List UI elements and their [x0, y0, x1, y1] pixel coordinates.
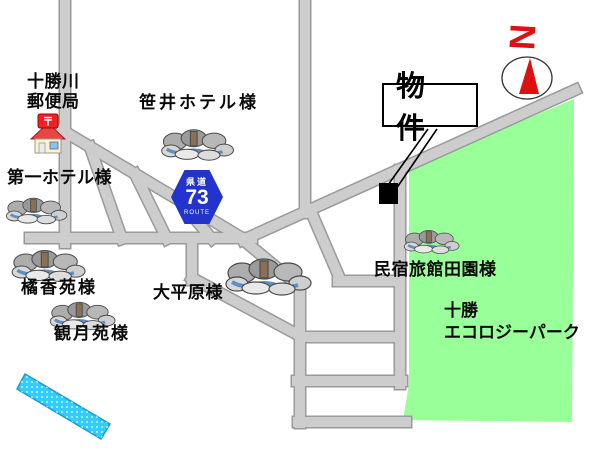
dennen-inn-icon [403, 227, 461, 257]
property-marker [379, 183, 398, 204]
compass-north-label: N [501, 23, 543, 51]
map-graphics: 〒 [0, 0, 600, 450]
ecology-park-label: 十勝 エコロジーパーク [444, 300, 580, 344]
location-map: 〒 [0, 0, 600, 450]
kikkoen-label: 橘香苑様 [21, 278, 97, 298]
daiheigen-icon [224, 253, 314, 301]
kangetsuen-label: 観月苑様 [54, 324, 130, 344]
daiheigen-label: 大平原様 [153, 283, 223, 303]
sasai-hotel-label: 笹井ホテル様 [139, 93, 259, 113]
daiichi-hotel-icon [5, 193, 69, 229]
sasai-hotel-icon [160, 126, 236, 164]
post-office-icon [30, 112, 66, 156]
post-office-label: 十勝川 郵便局 [27, 72, 80, 112]
dennen-inn-label: 民宿旅館田園様 [374, 260, 497, 280]
compass: N [501, 23, 552, 99]
shield-route-number: 73 [185, 187, 208, 209]
property-callout: 物件 [382, 83, 478, 127]
daiichi-hotel-label: 第一ホテル様 [7, 168, 112, 188]
river-strip [17, 374, 110, 439]
shield-route-text: ROUTE [184, 209, 210, 217]
